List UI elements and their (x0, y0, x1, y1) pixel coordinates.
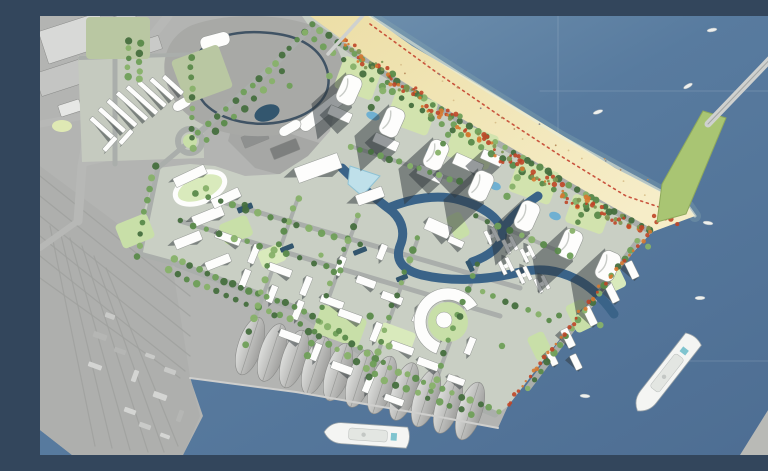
tree (126, 45, 132, 51)
tree (287, 83, 293, 89)
tree (350, 63, 357, 70)
beach-visitor (424, 61, 426, 63)
tree (223, 293, 229, 299)
tree (450, 325, 456, 331)
tree (189, 135, 195, 141)
tree (189, 115, 194, 120)
tree (597, 322, 604, 329)
tree (319, 305, 324, 310)
tree (535, 311, 541, 317)
tree (304, 352, 311, 359)
tree (336, 328, 342, 334)
tree (136, 59, 142, 65)
tree (565, 182, 572, 189)
tree (341, 57, 346, 62)
promenade-planting (584, 307, 588, 311)
tree (316, 318, 321, 323)
beach-visitor (623, 180, 625, 182)
tree (458, 406, 464, 412)
tree (381, 377, 388, 384)
tree (357, 345, 363, 351)
tree (187, 64, 193, 70)
beach-visitor (513, 128, 515, 130)
tree (440, 141, 446, 147)
tree (546, 318, 551, 323)
dune-vegetation (405, 88, 409, 92)
tree (416, 166, 421, 171)
tree (277, 312, 284, 319)
dune-vegetation (357, 60, 360, 63)
tree (144, 197, 151, 204)
dune-vegetation (390, 77, 393, 80)
tree (251, 95, 257, 101)
tree (318, 253, 323, 258)
dune-vegetation (548, 183, 550, 185)
dune-vegetation (344, 44, 347, 47)
dune-vegetation (398, 88, 401, 91)
beach-visitor (620, 169, 622, 171)
dune-vegetation (392, 82, 397, 87)
tree (456, 178, 463, 185)
tree (399, 280, 404, 285)
tree (399, 95, 405, 101)
tree (458, 132, 464, 138)
tree (367, 313, 374, 320)
dune-vegetation (499, 160, 502, 163)
tree (415, 390, 421, 396)
tree (389, 303, 395, 309)
tree (344, 352, 351, 359)
dune-vegetation (453, 112, 458, 117)
tree (214, 113, 220, 119)
tree (282, 299, 289, 306)
tree (409, 246, 417, 254)
beach-visitor (522, 138, 524, 140)
tree (575, 219, 581, 225)
tree (490, 293, 496, 299)
dune-vegetation (600, 205, 604, 209)
tree (305, 225, 312, 232)
dune-vegetation (520, 166, 525, 171)
promenade-planting (529, 375, 532, 378)
promenade-planting (560, 336, 563, 339)
tree (246, 328, 252, 334)
dune-vegetation (428, 113, 433, 118)
tree (524, 157, 531, 164)
tree (204, 227, 209, 232)
dune-vegetation (466, 132, 471, 137)
tree (331, 233, 338, 240)
tree (186, 262, 193, 269)
tree (509, 183, 515, 189)
tree (506, 227, 513, 234)
dune-vegetation (560, 193, 564, 197)
tree (184, 277, 190, 283)
beach-visitor (457, 87, 459, 89)
beach-visitor (647, 179, 649, 181)
tree (320, 43, 327, 50)
dune-vegetation (544, 180, 546, 182)
tree (258, 289, 264, 295)
dune-vegetation (501, 151, 504, 154)
tree (189, 94, 196, 101)
tree (269, 78, 275, 84)
tree (276, 241, 282, 247)
tree (221, 120, 228, 127)
tree (473, 213, 478, 218)
beach-visitor (539, 123, 541, 125)
dune-vegetation (455, 125, 459, 129)
promenade-planting (632, 249, 635, 252)
tree (478, 144, 484, 150)
dune-vegetation (381, 61, 383, 63)
dune-vegetation (530, 175, 534, 179)
tree (403, 385, 411, 393)
dune-vegetation (464, 128, 467, 131)
tree (355, 213, 361, 219)
tree (342, 335, 348, 341)
dune-vegetation (429, 109, 433, 113)
tree (233, 97, 240, 104)
tree (337, 267, 343, 273)
tree (401, 269, 406, 274)
tree (231, 114, 237, 120)
beach-visitor (568, 150, 570, 152)
dune-vegetation (369, 61, 372, 64)
tree (369, 77, 374, 82)
tree (205, 121, 211, 127)
dune-vegetation (397, 83, 401, 87)
tree (578, 212, 584, 218)
tree (420, 108, 426, 114)
tree (264, 263, 270, 269)
dune-vegetation (446, 109, 450, 113)
tree (555, 247, 562, 254)
promenade-planting (555, 343, 558, 346)
tree (503, 193, 510, 200)
tree (389, 88, 396, 95)
tree (137, 243, 143, 249)
tree (574, 186, 580, 192)
dune-vegetation (448, 116, 452, 120)
tree (468, 411, 475, 418)
promenade-planting (645, 233, 649, 237)
tree (634, 238, 640, 244)
tree (305, 328, 312, 335)
promenade-planting (572, 322, 576, 326)
tree (499, 343, 505, 349)
tree (536, 163, 543, 170)
dune-vegetation (371, 66, 374, 69)
tree (348, 144, 354, 150)
tree (193, 280, 200, 287)
tree (368, 104, 375, 111)
dune-vegetation (566, 197, 569, 200)
tree (458, 394, 465, 401)
tree (260, 86, 267, 93)
dune-vegetation (622, 217, 625, 220)
tree (480, 289, 485, 294)
dune-vegetation (401, 89, 405, 93)
traffic-island (52, 120, 72, 132)
tree (190, 223, 197, 230)
dune-vegetation (418, 96, 421, 99)
tree (466, 396, 473, 403)
tree (357, 147, 363, 153)
tree (519, 233, 525, 239)
tree (216, 230, 223, 237)
tree (175, 271, 181, 277)
dune-vegetation (547, 180, 550, 183)
tree (436, 172, 442, 178)
tree (242, 202, 248, 208)
beach-visitor (442, 80, 444, 82)
tree (318, 229, 326, 237)
dune-vegetation (618, 221, 622, 225)
dune-vegetation (361, 58, 365, 62)
promenade-planting (614, 267, 618, 271)
tree (540, 241, 547, 248)
tree (309, 21, 315, 27)
promenade-planting (512, 392, 517, 397)
dune-vegetation (509, 154, 512, 157)
tree (326, 73, 333, 80)
tree (379, 87, 386, 94)
tree (353, 358, 360, 365)
tree (545, 167, 552, 174)
tree (325, 32, 332, 39)
dune-vegetation (388, 82, 392, 86)
tree (203, 185, 209, 191)
tree (267, 214, 273, 220)
dune-vegetation (675, 222, 679, 226)
promenade-planting (604, 282, 608, 286)
tree (292, 304, 298, 310)
promenade-planting (591, 297, 595, 301)
promenade-planting (507, 403, 511, 407)
tree (146, 186, 153, 193)
tree (238, 285, 244, 291)
tree (265, 67, 272, 74)
promenade-planting (596, 291, 599, 294)
tree (125, 64, 131, 70)
tree (425, 396, 430, 401)
tree (363, 365, 370, 372)
tree (294, 37, 299, 42)
tree (241, 105, 249, 113)
tree (440, 350, 447, 357)
tree (557, 342, 563, 348)
masterplan-map (40, 16, 768, 455)
dune-vegetation (485, 135, 489, 139)
tree (297, 255, 302, 260)
tree (311, 261, 317, 267)
tree (382, 327, 388, 333)
promenade-planting (546, 351, 549, 354)
tree (485, 219, 490, 224)
tree (134, 253, 141, 260)
beach-visitor (453, 99, 455, 101)
dune-vegetation (353, 43, 357, 47)
tree (470, 273, 476, 279)
tree (286, 46, 291, 51)
tree (430, 102, 436, 108)
tree (178, 218, 183, 223)
promenade-planting (636, 244, 640, 248)
tree (392, 382, 399, 389)
tree (556, 312, 562, 318)
dune-vegetation (477, 136, 481, 140)
tree (345, 237, 352, 244)
dune-vegetation (543, 183, 546, 186)
tree (205, 194, 211, 200)
tree (233, 297, 239, 303)
tree (271, 312, 277, 318)
tree (406, 256, 413, 263)
tree (386, 156, 393, 163)
dune-vegetation (571, 202, 574, 205)
dune-vegetation (605, 215, 610, 220)
dune-vegetation (356, 49, 361, 54)
dune-vegetation (477, 133, 480, 136)
tree (220, 278, 227, 285)
tree (302, 29, 308, 35)
dune-vegetation (535, 176, 539, 180)
tree (311, 36, 317, 42)
tree (525, 307, 531, 313)
tree (255, 302, 262, 309)
dune-vegetation (560, 182, 565, 187)
beach-visitor (604, 158, 606, 160)
tree (256, 243, 263, 250)
promenade-planting (620, 261, 624, 265)
tree (308, 340, 315, 347)
tree (492, 139, 498, 145)
tree (204, 137, 210, 143)
tree (272, 60, 279, 67)
tree (312, 329, 318, 335)
tree (551, 187, 557, 193)
tree (242, 341, 249, 348)
tree (189, 86, 195, 92)
tree (438, 363, 444, 369)
dune-vegetation (364, 66, 368, 70)
tree (439, 121, 445, 127)
dune-vegetation (594, 205, 597, 208)
tree (387, 365, 392, 370)
tree (287, 315, 294, 322)
dune-vegetation (419, 91, 423, 95)
tree (415, 235, 420, 240)
dune-vegetation (450, 113, 453, 116)
tree (525, 386, 530, 391)
promenade-planting (550, 347, 555, 352)
promenade-planting (628, 254, 631, 257)
tree (262, 276, 269, 283)
dune-vegetation (493, 148, 496, 151)
tree (364, 350, 371, 357)
tree (468, 139, 475, 146)
beach-visitor (400, 64, 402, 66)
dune-vegetation (515, 162, 519, 166)
promenade-planting (575, 317, 578, 320)
dune-vegetation (517, 154, 521, 158)
tree (528, 236, 535, 243)
tree (394, 293, 400, 299)
dune-vegetation (436, 111, 440, 115)
tree (409, 103, 414, 108)
dune-vegetation (421, 105, 424, 108)
tree (250, 315, 258, 323)
promenade-planting (641, 239, 646, 244)
tree (179, 258, 186, 265)
promenade-planting (521, 385, 524, 388)
dune-vegetation (446, 114, 449, 117)
tree (290, 205, 296, 211)
tree (280, 228, 287, 235)
beach-visitor (644, 194, 646, 196)
tree (405, 371, 411, 377)
tree (569, 228, 575, 234)
tree (445, 132, 451, 138)
tree (301, 309, 307, 315)
dune-vegetation (424, 104, 429, 109)
beach-visitor (501, 117, 503, 119)
tree (447, 403, 453, 409)
tree (254, 209, 262, 217)
tree (325, 341, 332, 348)
dune-vegetation (381, 68, 385, 72)
tree (125, 37, 132, 44)
dune-vegetation (610, 218, 613, 221)
tree (148, 174, 155, 181)
dune-vegetation (347, 43, 349, 45)
tree (196, 266, 203, 273)
tree (296, 195, 303, 202)
dune-vegetation (553, 177, 558, 182)
dune-vegetation (401, 85, 404, 88)
tree (136, 50, 143, 57)
small-boat (695, 296, 705, 300)
tree (218, 198, 224, 204)
promenade-planting (586, 300, 590, 304)
tree (137, 231, 142, 236)
beach-visitor (480, 107, 482, 109)
promenade-planting (542, 355, 546, 359)
dune-vegetation (414, 86, 417, 89)
tree (435, 150, 441, 156)
tree (223, 106, 229, 112)
tree (457, 118, 463, 124)
tree (337, 259, 342, 264)
tree (449, 390, 454, 395)
promenade-planting (532, 369, 536, 373)
tree (446, 337, 451, 342)
tree (427, 170, 432, 175)
tree (140, 220, 146, 226)
tree (229, 201, 236, 208)
tree (475, 261, 480, 266)
tree (293, 222, 299, 228)
dune-vegetation (385, 66, 389, 70)
beach-visitor (581, 158, 583, 160)
masterplan-aerial-svg (40, 16, 768, 455)
tree (190, 145, 197, 152)
promenade-planting (525, 380, 527, 382)
tree (327, 281, 333, 287)
tree (204, 284, 210, 290)
tree (137, 40, 144, 47)
